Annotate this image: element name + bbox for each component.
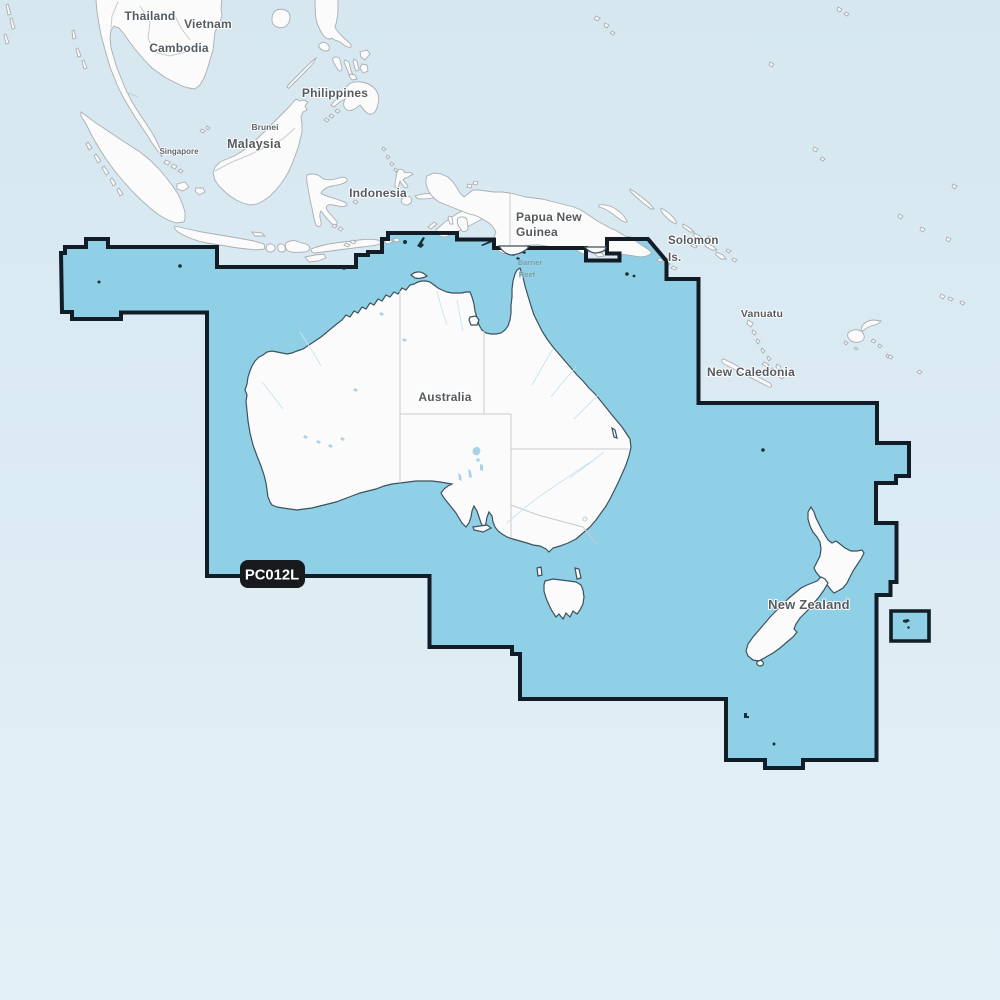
svg-text:Solomon: Solomon (668, 235, 719, 247)
svg-text:Reef: Reef (519, 270, 536, 279)
svg-text:Cambodia: Cambodia (149, 41, 209, 55)
svg-text:Philippines: Philippines (302, 86, 368, 100)
svg-text:PC012L: PC012L (245, 568, 299, 584)
svg-text:Is.: Is. (668, 252, 681, 264)
svg-text:Australia: Australia (418, 390, 471, 404)
svg-text:Vanuatu: Vanuatu (741, 308, 783, 320)
svg-text:New Caledonia: New Caledonia (707, 365, 795, 379)
svg-text:Vietnam: Vietnam (184, 17, 232, 31)
svg-text:Indonesia: Indonesia (349, 186, 407, 200)
svg-text:Guinea: Guinea (516, 225, 558, 239)
svg-text:New Zealand: New Zealand (768, 597, 850, 612)
svg-text:Thailand: Thailand (125, 9, 176, 23)
svg-text:Barrier: Barrier (518, 258, 543, 267)
svg-text:Papua New: Papua New (516, 210, 582, 224)
svg-text:Singapore: Singapore (159, 147, 199, 156)
svg-text:Malaysia: Malaysia (227, 137, 282, 151)
svg-text:Brunei: Brunei (252, 122, 279, 132)
